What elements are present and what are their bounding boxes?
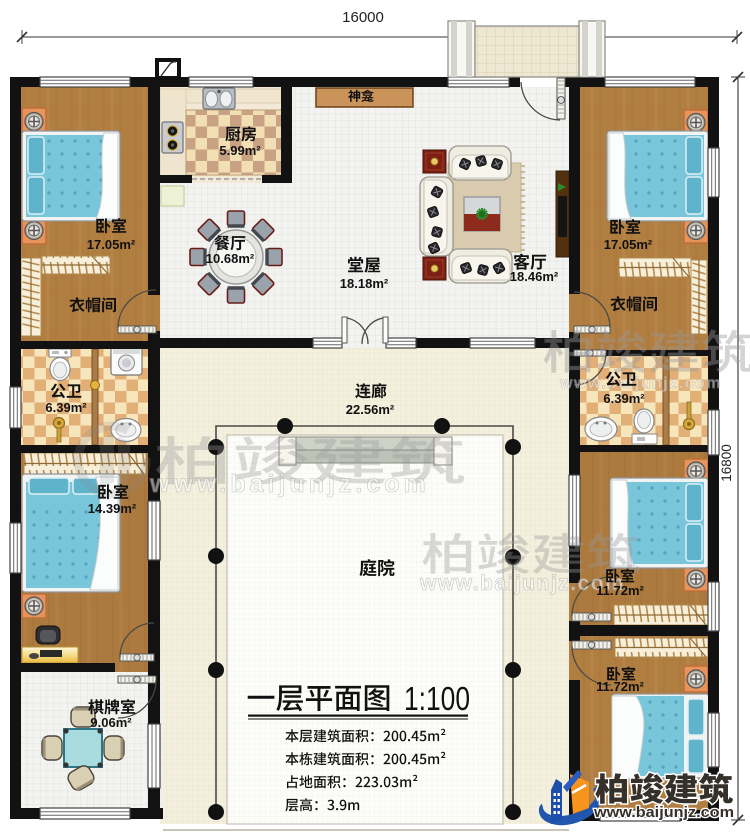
svg-text:16800: 16800 [719,444,734,482]
svg-text:www.baijunjz.com: www.baijunjz.com [559,375,722,392]
svg-text:11.72m²: 11.72m² [596,583,644,598]
svg-text:www.baijunjz.com: www.baijunjz.com [419,572,625,595]
svg-text:11.72m²: 11.72m² [596,679,644,694]
svg-text:5.99m²: 5.99m² [219,143,261,158]
svg-text:www.baijunjz.com: www.baijunjz.com [593,804,734,821]
svg-text:6.39m²: 6.39m² [603,391,645,406]
svg-text:17.05m²: 17.05m² [87,237,136,252]
svg-text:1:100: 1:100 [404,680,470,717]
svg-text:10.68m²: 10.68m² [206,251,255,266]
svg-text:17.05m²: 17.05m² [604,237,653,252]
svg-text:18.46m²: 18.46m² [510,269,559,284]
svg-text:www.baijunjz.com: www.baijunjz.com [149,470,430,498]
svg-text:9.06m²: 9.06m² [90,715,132,730]
svg-text:22.56m²: 22.56m² [346,402,395,417]
svg-text:18.18m²: 18.18m² [340,276,389,291]
svg-text:14.39m²: 14.39m² [88,501,137,516]
svg-text:16000: 16000 [342,9,384,26]
svg-text:6.39m²: 6.39m² [45,400,87,415]
